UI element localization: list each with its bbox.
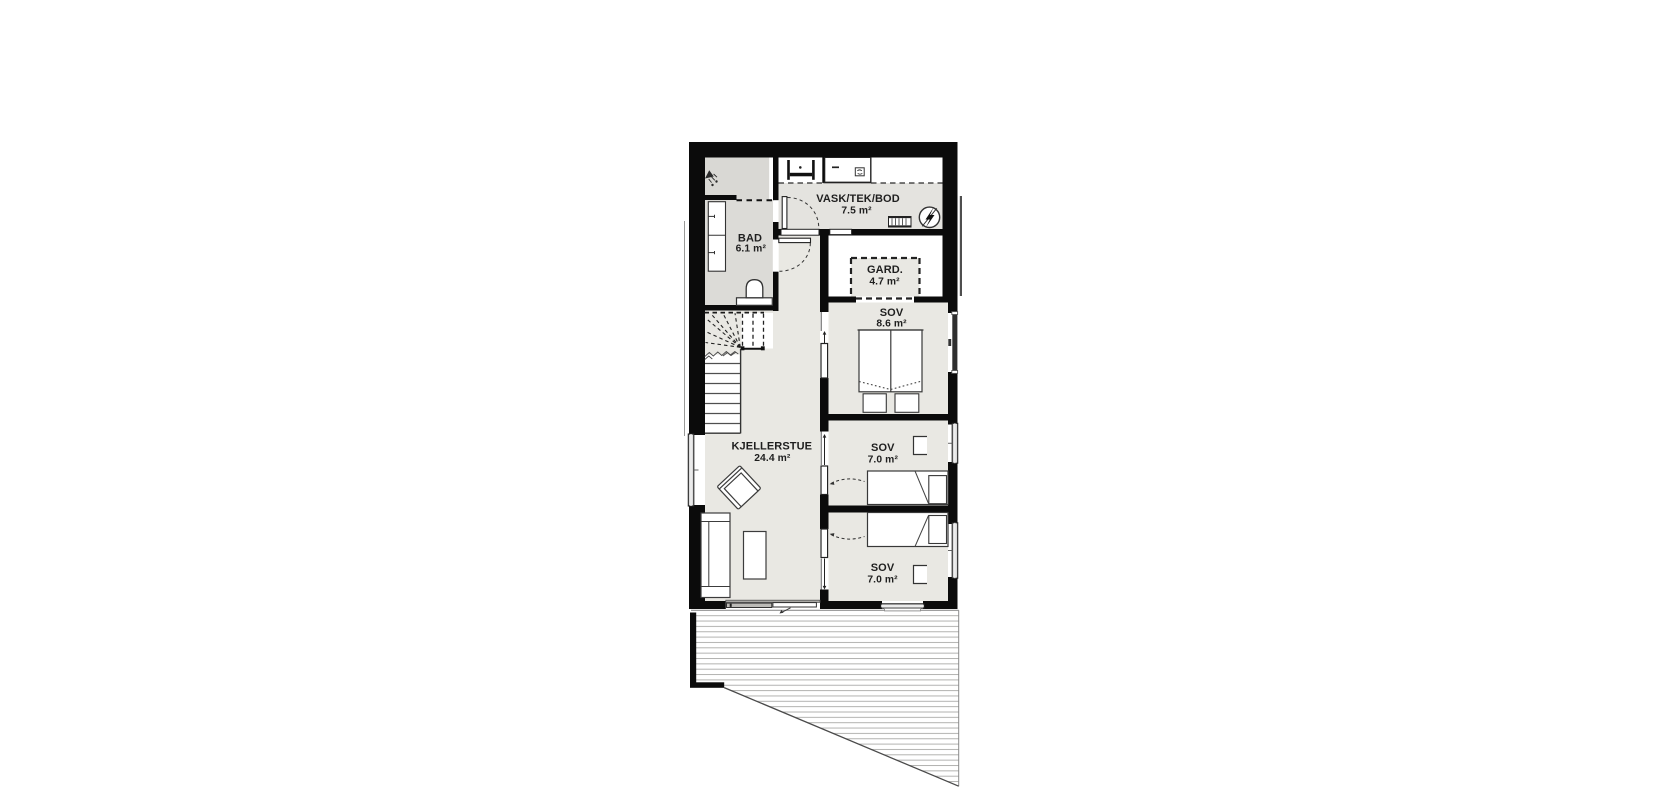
svg-text:6.1 m²: 6.1 m²: [736, 244, 767, 255]
svg-text:4.7 m²: 4.7 m²: [869, 277, 900, 288]
svg-text:24.4 m²: 24.4 m²: [754, 453, 791, 464]
svg-text:7.0 m²: 7.0 m²: [867, 575, 898, 586]
svg-text:7.0 m²: 7.0 m²: [868, 455, 899, 466]
svg-text:VASK/TEK/BOD: VASK/TEK/BOD: [816, 193, 900, 205]
svg-text:SOV: SOV: [871, 442, 895, 454]
svg-text:8.6 m²: 8.6 m²: [876, 319, 907, 330]
svg-text:SOV: SOV: [880, 307, 904, 319]
svg-text:GARD.: GARD.: [867, 264, 903, 276]
svg-text:7.5 m²: 7.5 m²: [841, 206, 872, 217]
svg-text:SOV: SOV: [871, 562, 895, 574]
svg-text:KJELLERSTUE: KJELLERSTUE: [732, 441, 813, 453]
